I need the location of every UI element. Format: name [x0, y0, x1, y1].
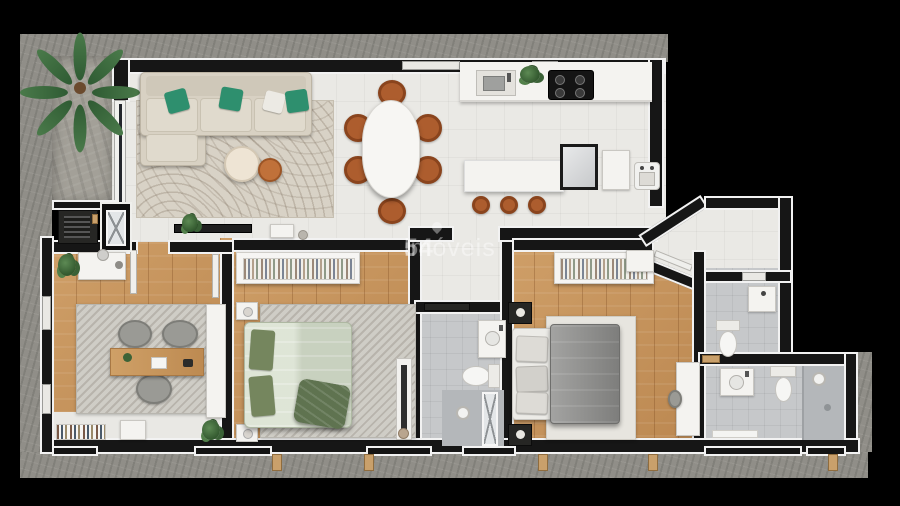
- bedroom2-nightstand-top: [236, 302, 258, 320]
- social-bath-sliding-door: [424, 303, 470, 311]
- window-sill-2: [194, 446, 272, 456]
- palm-leaf: [84, 96, 127, 139]
- window-left-2: [42, 384, 51, 414]
- wall-master-bathroom-right: [844, 352, 858, 452]
- throw-blanket: [293, 378, 352, 430]
- bar-stool: [528, 196, 546, 214]
- hanging-clothes: [243, 258, 355, 280]
- office-dresser: [78, 252, 126, 280]
- office-chair: [118, 320, 152, 348]
- palm-trunk: [74, 82, 86, 94]
- social-vanity: [478, 320, 506, 358]
- gray-pillow: [516, 335, 549, 362]
- burner: [575, 75, 585, 85]
- palm-leaf: [20, 86, 68, 99]
- palm-leaf: [33, 45, 76, 88]
- desk-plant: [123, 353, 132, 362]
- kitchen-plant: [520, 66, 540, 83]
- green-pillow: [285, 89, 310, 114]
- office-plant-top: [58, 254, 76, 276]
- sink-basin: [483, 76, 505, 91]
- elevator-door: [106, 210, 126, 246]
- master-nightstand-bottom: [508, 424, 532, 446]
- basin: [485, 331, 500, 346]
- lavabo-sink: [748, 286, 776, 312]
- bedroom2-door-leaf: [212, 254, 219, 298]
- cooktop: [548, 70, 594, 100]
- tub-tap: [650, 166, 654, 170]
- window-left-1: [42, 296, 51, 330]
- office-wardrobe: [206, 304, 226, 418]
- coffee-table-round: [224, 146, 260, 182]
- master-bathroom-threshold: [702, 355, 720, 363]
- burner: [555, 88, 565, 98]
- social-toilet-tank: [488, 364, 500, 388]
- dining-table: [362, 100, 420, 198]
- faucet: [499, 325, 503, 331]
- pillar-1: [272, 454, 282, 471]
- bbq-wood: [92, 214, 98, 224]
- master-bath-mat: [712, 430, 758, 438]
- bar-stool: [472, 196, 490, 214]
- green-pillow: [218, 86, 243, 111]
- concrete-band-right: [856, 352, 872, 452]
- sage-pillow: [249, 329, 276, 371]
- desk-object: [183, 359, 193, 367]
- bbq-grill: [58, 210, 98, 244]
- wall-hallway-right: [778, 196, 793, 370]
- lamp: [243, 307, 253, 317]
- master-toilet-bowl: [775, 377, 792, 402]
- master-toilet-tank: [770, 366, 796, 377]
- elevator-shaft: [100, 202, 132, 252]
- refrigerator: [560, 144, 598, 190]
- palm-leaf: [74, 33, 87, 81]
- master-shower-head: [812, 372, 826, 386]
- window-sill-5: [704, 446, 802, 456]
- master-vanity: [720, 368, 754, 396]
- pillar-4: [648, 454, 658, 471]
- laundry-tub: [634, 162, 660, 190]
- basin: [729, 375, 744, 390]
- master-duvet: [550, 324, 620, 424]
- laptop: [151, 357, 167, 369]
- tub-basin: [639, 172, 655, 186]
- sage-pillow: [248, 375, 275, 417]
- wall-bedroom2-top: [232, 238, 416, 252]
- palm-leaf: [74, 105, 87, 153]
- bbq-grate: [64, 216, 90, 238]
- mirror-glass: [401, 365, 407, 433]
- window-sill-3: [366, 446, 432, 456]
- lamp: [243, 429, 253, 439]
- watermark-brand: imóveis: [404, 234, 496, 263]
- burner: [575, 88, 585, 98]
- pillar-5: [828, 454, 838, 471]
- social-shower-door: [482, 392, 498, 446]
- bar-stool: [500, 196, 518, 214]
- office-chair: [162, 320, 198, 348]
- sofa-chaise-cushion: [146, 134, 198, 162]
- office-chair: [136, 374, 172, 404]
- palm-leaf: [84, 45, 127, 88]
- pillar-3: [538, 454, 548, 471]
- appliance-cabinet: [602, 150, 630, 190]
- palm-leaf: [92, 86, 140, 99]
- bedroom2-wardrobe: [236, 252, 360, 284]
- faucet: [745, 371, 749, 377]
- sink-faucet: [507, 73, 511, 82]
- living-side-table: [270, 224, 294, 238]
- kitchen-island: [464, 160, 564, 192]
- office-plant-bottom: [202, 420, 220, 440]
- lamp: [516, 430, 525, 439]
- palm-plant: [30, 38, 130, 142]
- window-sill-6: [806, 446, 846, 456]
- social-toilet-bowl: [462, 366, 490, 386]
- lamp: [516, 308, 525, 317]
- floor-plan-render: 54 imóveis: [0, 0, 900, 506]
- window-sill-1: [52, 446, 98, 456]
- faucet: [761, 291, 766, 296]
- pillar-2: [364, 454, 374, 471]
- lavabo-toilet-tank: [716, 320, 740, 331]
- master-corner-cabinet: [626, 250, 654, 272]
- window-top-1: [402, 61, 460, 70]
- wall-left-outer: [40, 236, 54, 454]
- office-cabinet: [120, 420, 146, 440]
- window-sill-4: [462, 446, 516, 456]
- side-table-terracotta: [258, 158, 282, 182]
- decor-ball: [298, 230, 308, 240]
- dresser-item: [115, 261, 123, 269]
- social-shower-head: [456, 406, 470, 420]
- gray-pillow: [516, 365, 549, 392]
- burner: [555, 75, 565, 85]
- master-desk-chair: [668, 390, 682, 408]
- tub-tap: [640, 166, 644, 170]
- master-shower-drain: [824, 404, 831, 411]
- living-plant: [182, 214, 198, 232]
- mirror-basket: [398, 428, 409, 439]
- toilet-room-door-gap: [742, 272, 766, 281]
- office-door-leaf: [130, 250, 137, 294]
- kitchen-sink: [476, 70, 516, 96]
- palm-leaf: [33, 96, 76, 139]
- office-bookshelf: [56, 424, 106, 440]
- dresser-mirror: [97, 249, 109, 261]
- gray-pillow: [516, 391, 549, 414]
- master-nightstand-top: [508, 302, 532, 324]
- office-desk: [110, 348, 204, 376]
- dining-chair: [378, 198, 406, 224]
- lavabo-toilet-bowl: [719, 331, 737, 357]
